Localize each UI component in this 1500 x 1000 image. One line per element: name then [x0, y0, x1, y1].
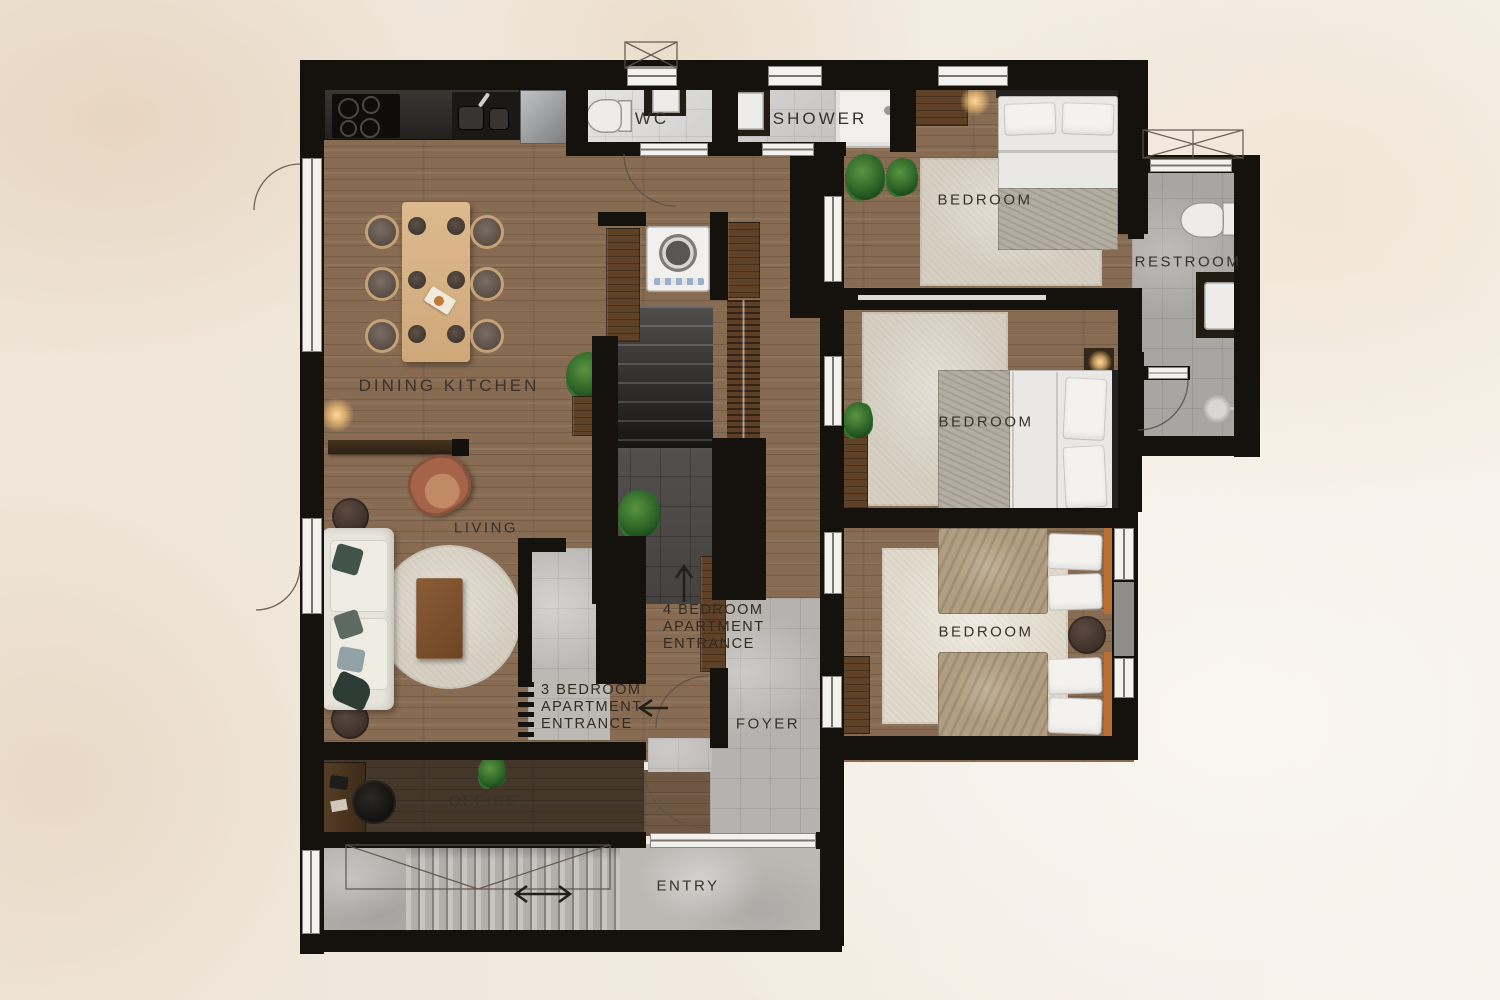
- twin-bed-blanket: [938, 652, 1048, 738]
- twin-bed-blanket: [938, 528, 1048, 614]
- duvet-fold: [1012, 372, 1014, 512]
- wall-slider-line: [858, 295, 1046, 300]
- dining-chair: [365, 215, 399, 249]
- dining-chair: [365, 267, 399, 301]
- door: [824, 356, 842, 426]
- laptop: [329, 775, 349, 790]
- window: [768, 66, 822, 86]
- bed-pillow: [1061, 102, 1114, 136]
- label-bedroom3: BEDROOM: [938, 624, 1033, 641]
- floor-foyer-tile-2: [648, 738, 712, 772]
- wall: [1128, 155, 1144, 239]
- window: [302, 850, 320, 934]
- sliding-door: [824, 196, 842, 282]
- landing-plant: [618, 490, 660, 538]
- washer-controls: [654, 278, 704, 285]
- wall: [598, 212, 646, 226]
- nightstand-round: [1068, 616, 1106, 654]
- wall: [820, 598, 844, 946]
- annotation-line: APARTMENT: [663, 619, 765, 636]
- wall: [1234, 155, 1260, 457]
- wall: [1128, 436, 1260, 456]
- bed-pillow: [1062, 445, 1107, 509]
- wall: [712, 438, 766, 600]
- window: [302, 518, 322, 614]
- bedroom1-plant: [886, 158, 918, 196]
- label-office: OFFICE: [449, 793, 519, 810]
- showerhead-icon: [1202, 394, 1232, 424]
- wall: [596, 536, 646, 684]
- label-foyer: FOYER: [736, 716, 800, 733]
- dining-chair: [470, 319, 504, 353]
- bedroom3-dresser: [840, 656, 870, 734]
- annotation-4bed-entrance: 4 BEDROOM APARTMENT ENTRANCE: [663, 602, 765, 653]
- office-plant: [478, 756, 506, 788]
- sink-basin: [489, 108, 509, 130]
- utility-cabinet: [727, 222, 760, 298]
- wc-toilet-bowl: [586, 99, 622, 133]
- wall: [300, 930, 842, 952]
- vanity-basin: [1204, 282, 1236, 330]
- coffee-table: [416, 578, 463, 659]
- label-shower: SHOWER: [773, 109, 868, 129]
- label-bedroom1: BEDROOM: [937, 192, 1032, 209]
- place-setting: [408, 325, 426, 343]
- window: [938, 66, 1008, 86]
- bedroom1-lamp: [960, 86, 990, 116]
- bedroom2-dresser: [840, 430, 868, 514]
- bed-foot-blanket: [938, 370, 1010, 514]
- bed-pillow: [1047, 573, 1102, 611]
- media-console: [328, 440, 462, 454]
- wall: [300, 832, 646, 848]
- bedroom1-plant: [845, 154, 885, 200]
- speaker-box: [452, 439, 469, 456]
- window: [627, 66, 677, 86]
- wall: [300, 742, 646, 760]
- office-chair: [352, 780, 396, 824]
- annotation-3bed-entrance: 3 BEDROOM APARTMENT ENTRANCE: [541, 682, 643, 733]
- dining-chair: [470, 267, 504, 301]
- wall: [838, 736, 1138, 760]
- restroom-door: [1148, 367, 1188, 379]
- place-setting: [408, 217, 426, 235]
- floor-entry-landing: [312, 844, 408, 932]
- shower-door: [762, 143, 814, 156]
- restroom-window: [1150, 159, 1232, 172]
- bed-pillow: [1047, 533, 1102, 571]
- window: [1114, 528, 1134, 580]
- door: [824, 532, 842, 594]
- bed-pillow: [1003, 102, 1056, 136]
- wall: [890, 60, 916, 152]
- burner-icon: [340, 120, 357, 137]
- wall: [710, 668, 728, 748]
- floor-hall-wood: [644, 770, 710, 836]
- foyer-door: [822, 676, 842, 728]
- shower-sink: [734, 92, 764, 130]
- annotation-line: 4 BEDROOM: [663, 602, 765, 619]
- entry-exterior-stairs: [406, 844, 622, 932]
- place-setting: [408, 271, 426, 289]
- wall: [816, 832, 826, 849]
- entrance-door-hatch: [518, 682, 534, 740]
- dining-chair: [365, 319, 399, 353]
- wall: [518, 538, 532, 684]
- burner-icon: [338, 98, 359, 119]
- window: [302, 158, 322, 352]
- wall: [710, 212, 728, 300]
- label-restroom: RESTROOM: [1135, 254, 1242, 271]
- louver-closet: [727, 300, 760, 444]
- annotation-line: 3 BEDROOM: [541, 682, 643, 699]
- place-setting: [447, 217, 465, 235]
- wall: [712, 82, 738, 148]
- wall-panel: [1114, 582, 1134, 656]
- burner-icon: [362, 96, 380, 114]
- floor-plan-canvas: DINING KITCHEN WC SHOWER BEDROOM RESTROO…: [0, 0, 1500, 1000]
- floor-lamp: [320, 398, 354, 432]
- utility-cabinet: [606, 228, 640, 342]
- duvet-fold: [998, 150, 1118, 153]
- bed-pillow: [1047, 697, 1102, 735]
- label-bedroom2: BEDROOM: [938, 414, 1033, 431]
- sink-basin: [458, 106, 484, 130]
- label-entry: ENTRY: [656, 878, 719, 895]
- dining-chair: [470, 215, 504, 249]
- bedroom2-plant: [843, 402, 873, 438]
- duvet-fold: [1056, 372, 1058, 512]
- annotation-line: ENTRANCE: [541, 716, 643, 733]
- wall: [566, 82, 588, 148]
- washer-drum-icon: [659, 234, 697, 272]
- sliding-door: [640, 143, 708, 156]
- floor-entry-right: [620, 844, 822, 932]
- toilet-bowl: [1180, 202, 1224, 238]
- entry-sliding-door: [650, 833, 816, 848]
- centerpiece-bowl: [434, 296, 444, 306]
- throw-pillow: [336, 646, 366, 673]
- annotation-line: ENTRANCE: [663, 636, 765, 653]
- label-dining-kitchen: DINING KITCHEN: [359, 376, 540, 396]
- place-setting: [447, 325, 465, 343]
- annotation-line: APARTMENT: [541, 699, 643, 716]
- wall: [838, 508, 1138, 528]
- bed-pillow: [1047, 657, 1102, 695]
- burner-icon: [360, 118, 380, 138]
- window: [1114, 658, 1134, 698]
- place-setting: [447, 271, 465, 289]
- label-living: LIVING: [454, 520, 518, 537]
- bed-pillow: [1062, 377, 1107, 441]
- label-wc: WC: [635, 109, 669, 129]
